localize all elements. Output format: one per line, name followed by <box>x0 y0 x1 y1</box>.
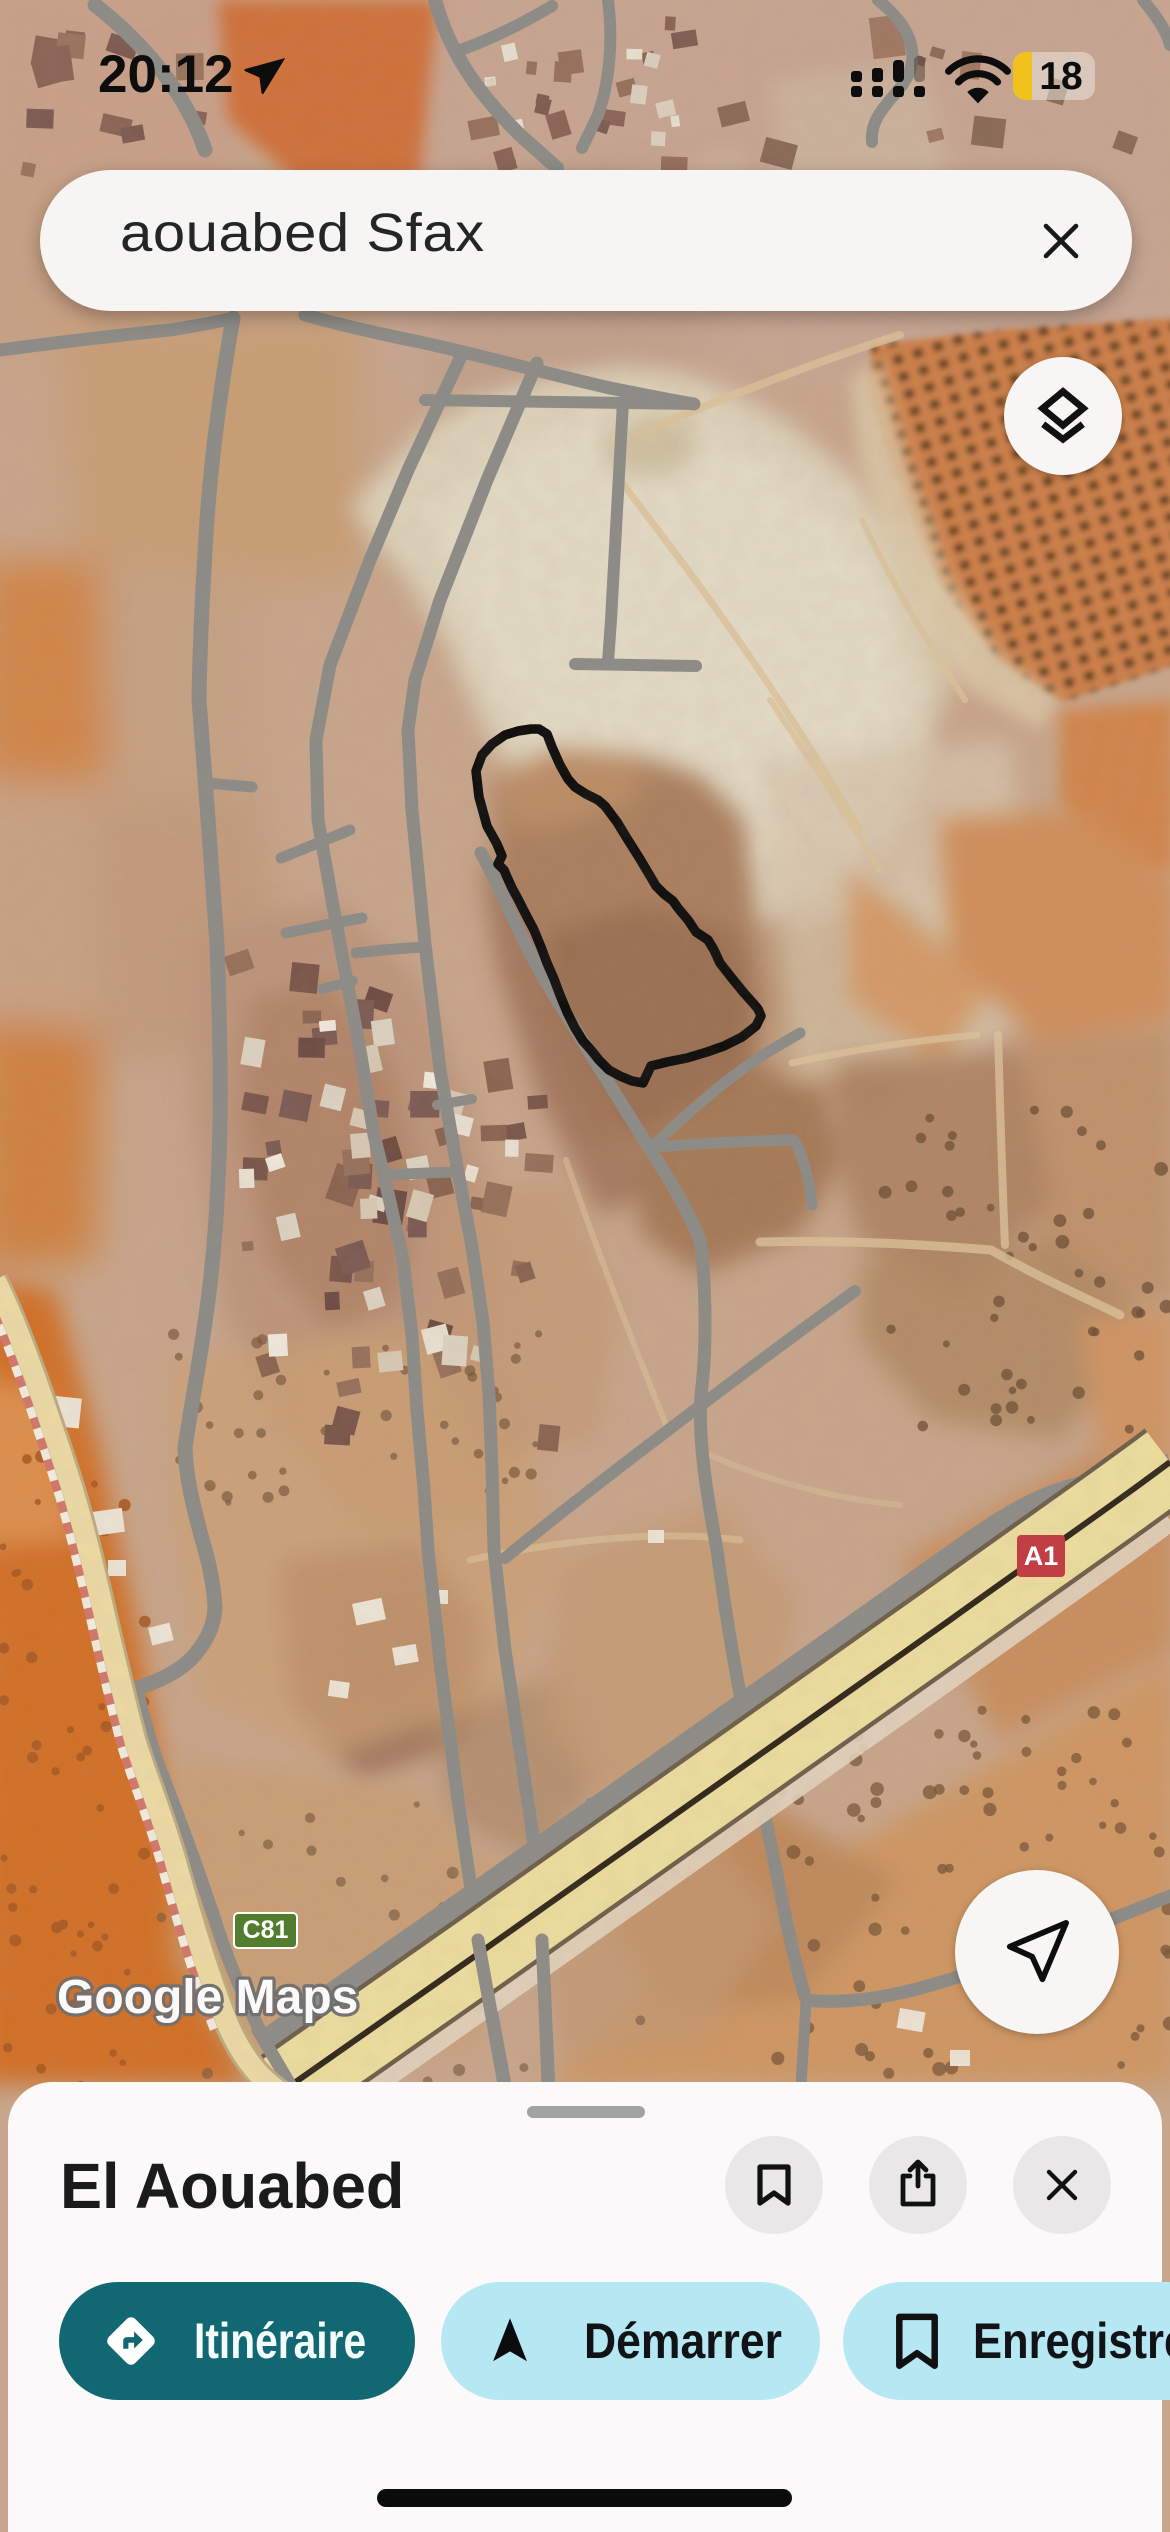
svg-text:Google Maps: Google Maps <box>57 1971 358 2024</box>
